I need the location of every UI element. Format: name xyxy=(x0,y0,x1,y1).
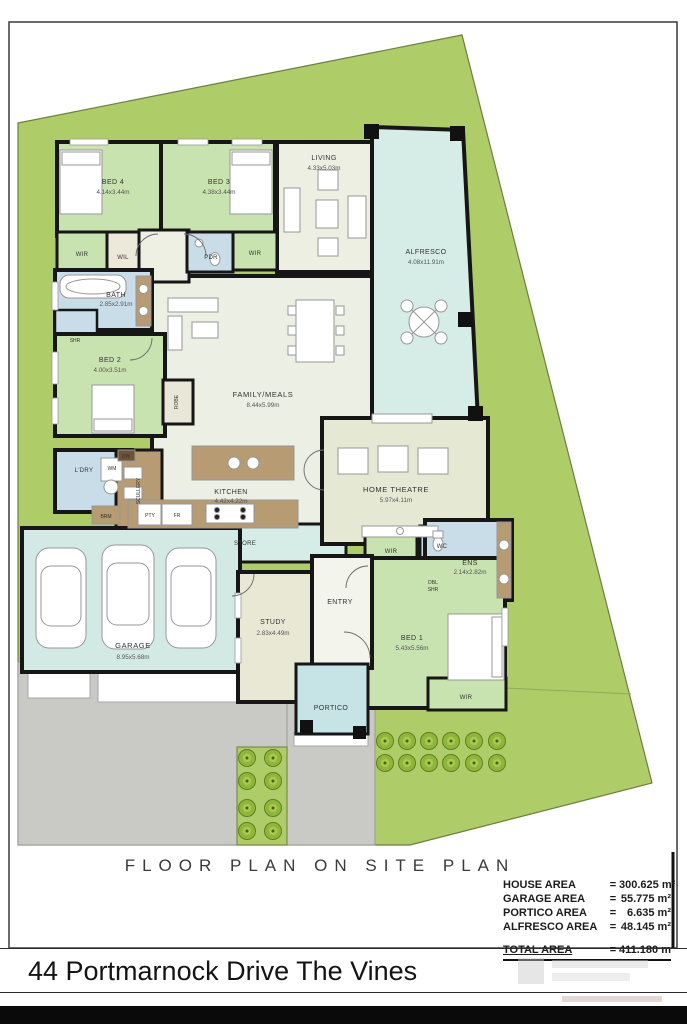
svg-text:2.85x2.91m: 2.85x2.91m xyxy=(100,301,133,308)
label-wir: WIR xyxy=(460,695,473,701)
label-robe: ROBE xyxy=(174,394,180,409)
svg-text:2.83x4.49m: 2.83x4.49m xyxy=(257,630,290,637)
label-bath: BATH xyxy=(106,292,126,299)
divider-line xyxy=(0,992,687,993)
svg-text:SHR: SHR xyxy=(428,587,439,593)
area-row-house: HOUSE AREA = 300.625 m² xyxy=(503,878,671,892)
label-living: LIVING xyxy=(311,155,336,162)
area-row-garage: GARAGE AREA = 55.775 m² xyxy=(503,892,671,906)
label-pdr: PDR xyxy=(204,255,218,261)
svg-text:2.14x2.82m: 2.14x2.82m xyxy=(454,569,487,576)
floor-plan-page: BED 4 4.14x3.44m BED 3 4.38x3.44m LIVING… xyxy=(0,0,687,1024)
label-dw: DW xyxy=(122,454,131,460)
watermark-logo xyxy=(518,956,668,1002)
label-ldry: L'DRY xyxy=(75,468,94,474)
bottom-black-bar xyxy=(0,1006,687,1024)
plan-caption: FLOOR PLAN ON SITE PLAN xyxy=(0,856,640,876)
label-kitchen: KITCHEN xyxy=(214,489,248,496)
area-row-alfresco: ALFRESCO AREA = 48.145 m² xyxy=(503,920,671,934)
label-bed1: BED 1 xyxy=(401,635,423,642)
label-pty: PTY xyxy=(145,513,155,519)
svg-text:4.33x5.03m: 4.33x5.03m xyxy=(308,165,341,172)
label-entry: ENTRY xyxy=(327,599,353,606)
label-brm: BRM xyxy=(100,514,111,520)
svg-text:5.43x5.56m: 5.43x5.56m xyxy=(396,645,429,652)
svg-text:8.95x5.68m: 8.95x5.68m xyxy=(117,654,150,661)
ens-vanity-icon xyxy=(497,522,511,598)
room-entry xyxy=(312,556,372,668)
scullery-sink-icon xyxy=(124,467,142,479)
label-shr: SHR xyxy=(70,338,81,344)
address-title: 44 Portmarnock Drive The Vines xyxy=(28,956,417,987)
label-scullery: SCULLERY xyxy=(136,477,142,504)
room-wil xyxy=(107,232,141,270)
label-portico: PORTICO xyxy=(314,705,349,712)
label-bed3: BED 3 xyxy=(208,179,230,186)
label-wir: WIR xyxy=(76,252,89,258)
label-family-meals: FAMILY/MEALS xyxy=(233,390,294,399)
cooktop-icon xyxy=(206,504,254,523)
label-wil: WIL xyxy=(117,255,129,261)
divider-line xyxy=(0,948,687,949)
svg-text:4.14x3.44m: 4.14x3.44m xyxy=(97,189,130,196)
label-ens: ENS xyxy=(462,560,478,567)
label-wir: WIR xyxy=(385,549,398,555)
label-fr: FR xyxy=(174,513,181,519)
label-store: STORE xyxy=(234,541,256,547)
svg-text:8.44x5.99m: 8.44x5.99m xyxy=(247,402,280,409)
label-garage: GARAGE xyxy=(115,641,151,650)
vanity-icon xyxy=(136,276,151,326)
svg-text:4.38x3.44m: 4.38x3.44m xyxy=(203,189,236,196)
label-bed2: BED 2 xyxy=(99,357,121,364)
kitchen-island-icon xyxy=(192,446,294,480)
label-wm: WM xyxy=(108,466,117,472)
room-pdr xyxy=(187,232,233,272)
svg-text:5.97x4.11m: 5.97x4.11m xyxy=(380,497,412,504)
laundry-tub-icon xyxy=(104,480,118,494)
room-wir-bed4 xyxy=(57,232,107,270)
label-home-theatre: HOME THEATRE xyxy=(363,485,429,494)
svg-text:4.00x3.51m: 4.00x3.51m xyxy=(94,367,127,374)
label-dbl-shr: DBL xyxy=(428,580,438,586)
label-alfresco: ALFRESCO xyxy=(406,249,447,256)
label-wir: WIR xyxy=(249,251,262,257)
label-study: STUDY xyxy=(260,619,286,626)
cistern-icon xyxy=(433,531,443,538)
svg-text:4.42x4.22m: 4.42x4.22m xyxy=(215,498,248,505)
label-bed4: BED 4 xyxy=(102,179,124,186)
watermark-icon xyxy=(518,958,544,984)
label-wc: WC xyxy=(437,544,448,550)
area-row-portico: PORTICO AREA = 6.635 m² xyxy=(503,906,671,920)
room-alfresco xyxy=(372,127,478,420)
svg-text:4.08x11.91m: 4.08x11.91m xyxy=(408,259,444,266)
car-icon xyxy=(36,545,216,649)
room-wir-bed1 xyxy=(428,678,506,710)
